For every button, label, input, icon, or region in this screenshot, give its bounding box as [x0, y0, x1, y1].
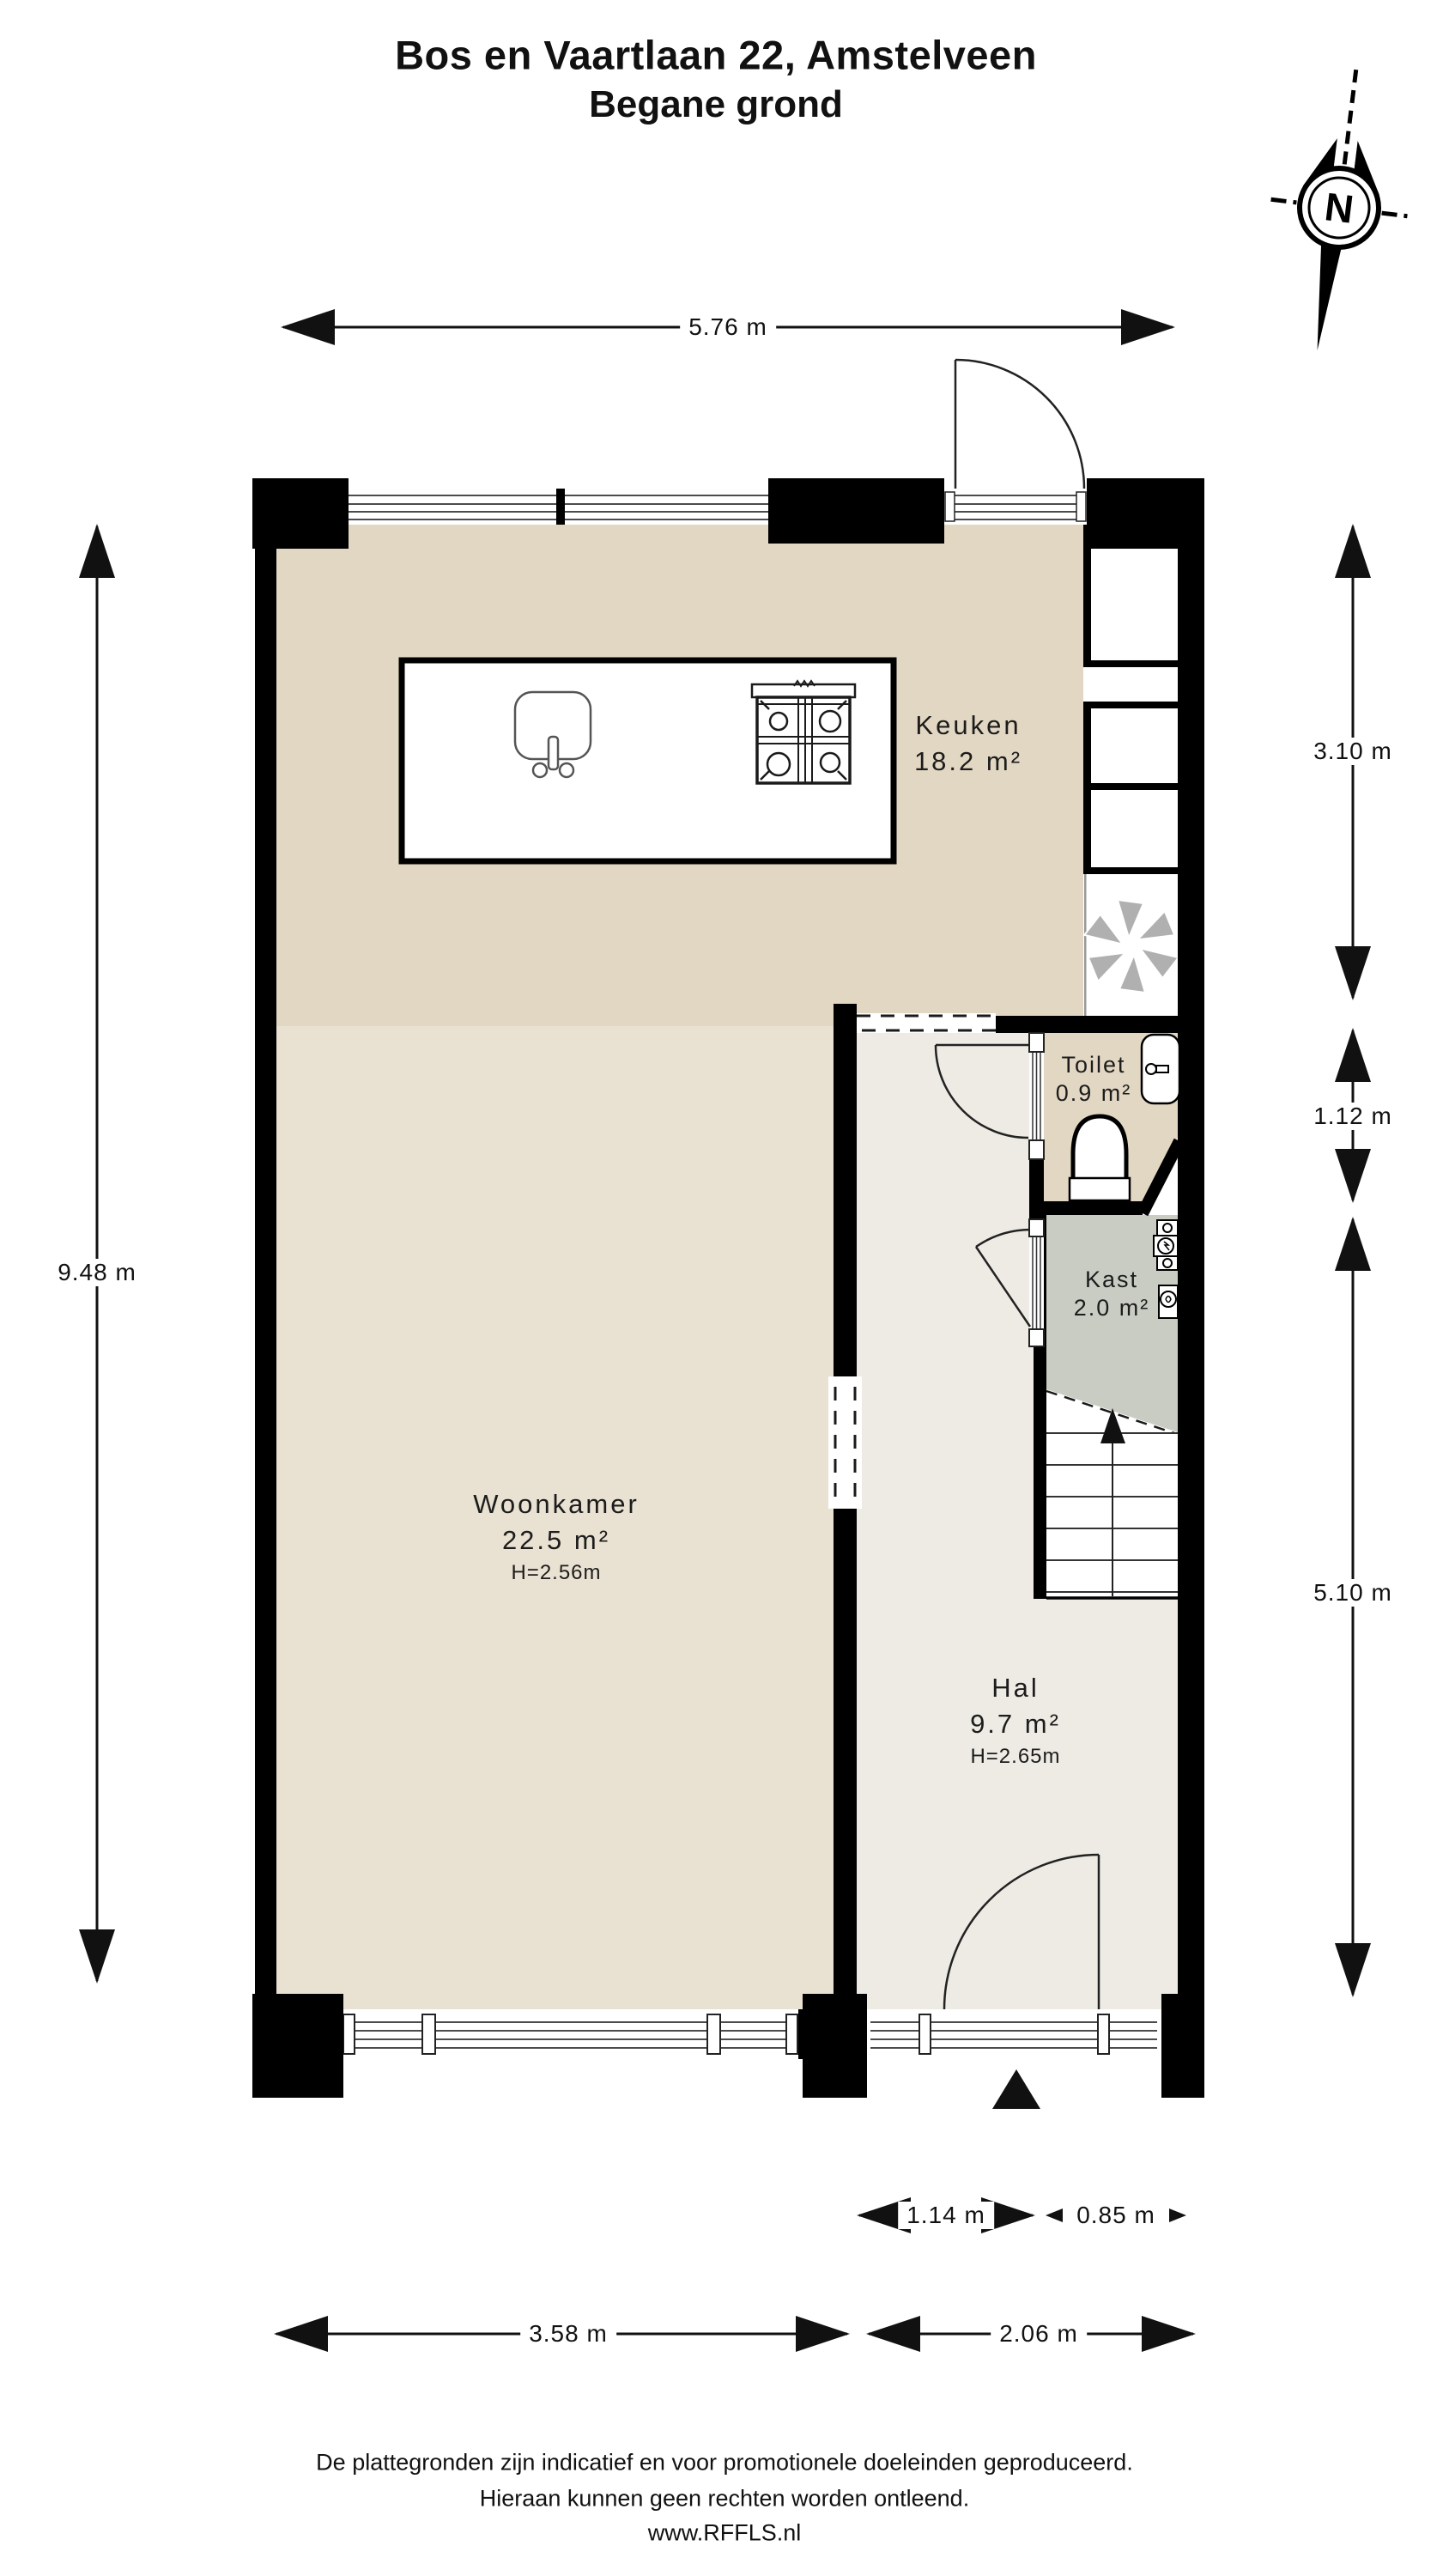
compass-icon: N	[1253, 61, 1424, 359]
toilet-top-wall	[996, 1016, 1178, 1033]
bottom-right-corner	[1161, 1994, 1204, 2098]
room-area: 22.5 m²	[473, 1525, 640, 1556]
room-area: 0.9 m²	[1056, 1080, 1132, 1107]
room-name: Keuken	[914, 710, 1022, 741]
electric-meter-icon	[1154, 1220, 1178, 1270]
dim-bottom-door: 1.14 m	[898, 2202, 994, 2229]
room-area: 2.0 m²	[1074, 1295, 1150, 1321]
dim-right-top: 3.10 m	[1305, 738, 1401, 765]
bottom-window	[343, 2009, 798, 2059]
room-name: Woonkamer	[473, 1489, 640, 1520]
right-wall	[1178, 489, 1204, 2059]
dim-bottom-right: 2.06 m	[991, 2320, 1087, 2348]
toilet-bottom-wall	[1044, 1201, 1143, 1215]
room-ceiling-height: H=2.65m	[970, 1745, 1061, 1769]
website-url: www.RFFLS.nl	[648, 2520, 802, 2547]
top-wall-pier	[768, 478, 944, 544]
dim-right-bottom: 5.10 m	[1305, 1579, 1401, 1607]
disclaimer-line-2: Hieraan kunnen geen rechten worden ontle…	[480, 2486, 969, 2512]
gas-meter-icon	[1159, 1285, 1178, 1318]
back-door	[944, 360, 1087, 525]
toilet-bowl-icon	[1070, 1116, 1130, 1200]
top-left-corner	[252, 478, 349, 549]
dim-left-height: 9.48 m	[49, 1259, 145, 1286]
room-label-keuken: Keuken 18.2 m²	[914, 710, 1022, 777]
floor-plan: N	[0, 0, 1449, 2576]
dim-right-middle: 1.12 m	[1305, 1103, 1401, 1130]
room-name: Hal	[970, 1673, 1061, 1704]
dim-bottom-left: 3.58 m	[520, 2320, 616, 2348]
room-area: 18.2 m²	[914, 746, 1022, 777]
top-right-corner	[1087, 478, 1204, 549]
room-name: Kast	[1074, 1267, 1150, 1293]
room-label-woonkamer: Woonkamer 22.5 m² H=2.56m	[473, 1489, 640, 1585]
keuken-hal-opening	[857, 1013, 996, 1033]
dim-bottom-door-side: 0.85 m	[1068, 2202, 1164, 2229]
room-name: Toilet	[1056, 1052, 1132, 1078]
room-label-hal: Hal 9.7 m² H=2.65m	[970, 1673, 1061, 1769]
room-area: 9.7 m²	[970, 1709, 1061, 1740]
washbasin-icon	[1142, 1035, 1179, 1103]
page-title: Bos en Vaartlaan 22, Amstelveen	[395, 32, 1037, 79]
room-ceiling-height: H=2.56m	[473, 1561, 640, 1585]
door-swing	[955, 360, 1084, 489]
floorplan-page: N Bos en Vaartlaan 22, Amstelveen Begane…	[0, 0, 1449, 2576]
bottom-left-corner	[252, 1994, 343, 2098]
stove-icon	[752, 681, 855, 783]
left-wall	[255, 489, 276, 2059]
disclaimer-line-1: De plattegronden zijn indicatief en voor…	[316, 2450, 1133, 2476]
compass-north-label: N	[1322, 184, 1355, 232]
bottom-center-pier	[803, 1994, 867, 2098]
top-windows	[348, 489, 768, 525]
kitchen-counter	[1083, 525, 1178, 1016]
page-subtitle: Begane grond	[589, 83, 843, 126]
entrance-arrow-icon	[992, 2069, 1040, 2109]
toilet-kast-wall	[1029, 1159, 1044, 1219]
dim-top-width: 5.76 m	[680, 313, 776, 341]
room-label-toilet: Toilet 0.9 m²	[1056, 1050, 1132, 1107]
room-label-kast: Kast 2.0 m²	[1074, 1265, 1150, 1321]
